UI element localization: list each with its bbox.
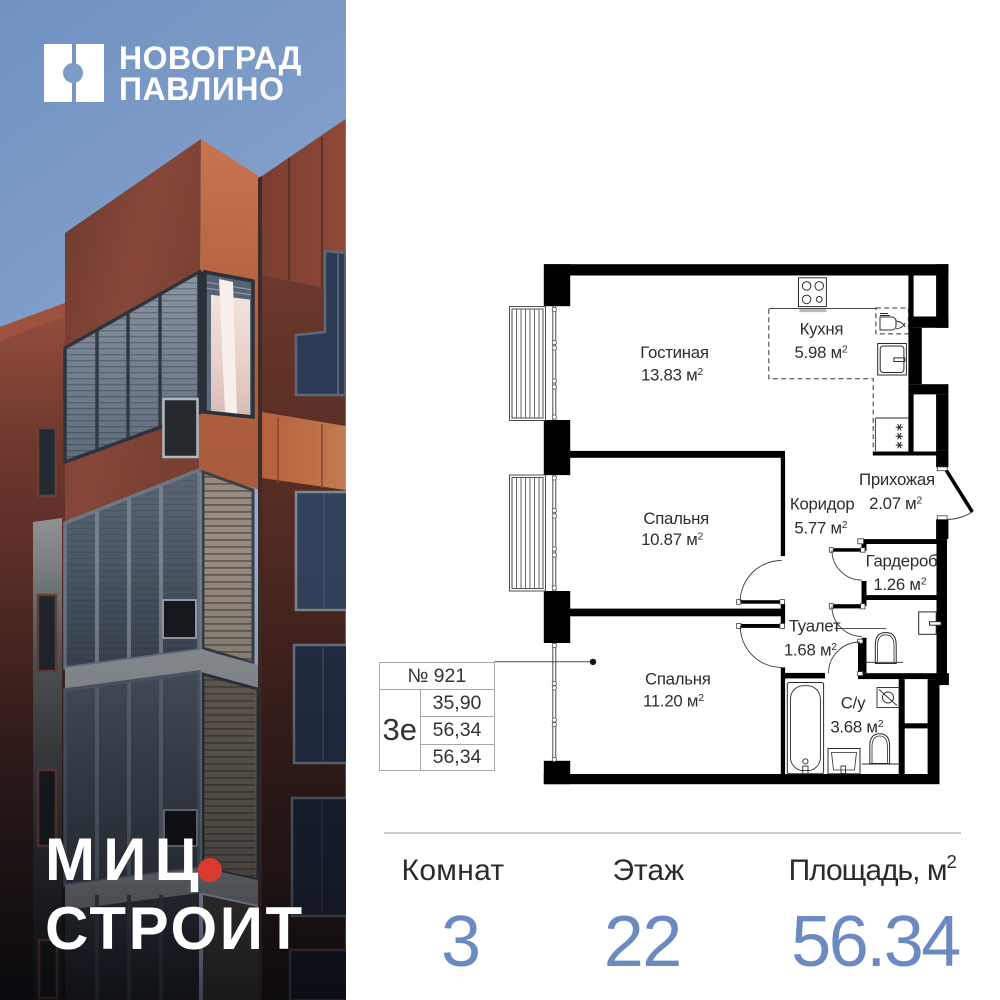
svg-text:С/у: С/у [841, 694, 866, 713]
svg-text:Спальня: Спальня [643, 509, 709, 528]
svg-text:2.07 м2: 2.07 м2 [869, 494, 922, 513]
svg-text:Прихожая: Прихожая [859, 470, 935, 489]
svg-text:1.68 м2: 1.68 м2 [784, 641, 837, 660]
svg-text:Кухня: Кухня [800, 320, 844, 339]
svg-text:3.68 м2: 3.68 м2 [830, 718, 883, 737]
svg-text:Спальня: Спальня [645, 670, 711, 689]
svg-text:13.83 м2: 13.83 м2 [641, 366, 703, 385]
svg-text:Коридор: Коридор [790, 495, 855, 514]
svg-text:5.98 м2: 5.98 м2 [795, 343, 848, 362]
svg-text:Гостиная: Гостиная [640, 343, 708, 362]
svg-text:11.20 м2: 11.20 м2 [643, 692, 704, 711]
svg-text:Туалет: Туалет [789, 617, 841, 636]
svg-text:1.26 м2: 1.26 м2 [873, 575, 926, 594]
svg-text:10.87 м2: 10.87 м2 [641, 530, 703, 549]
svg-text:5.77 м2: 5.77 м2 [794, 519, 847, 538]
svg-text:Гардероб: Гардероб [866, 552, 938, 571]
